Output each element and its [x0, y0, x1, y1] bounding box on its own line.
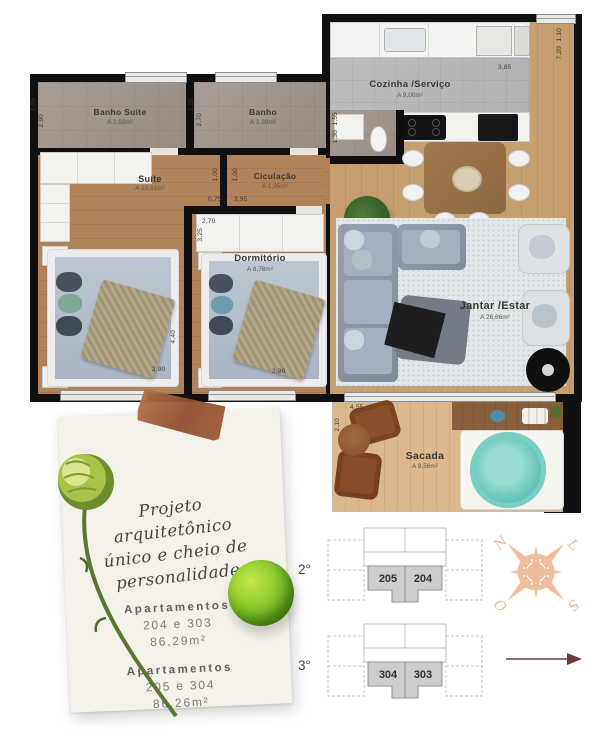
oven-tower — [514, 26, 530, 56]
dim: 2,90 — [152, 366, 165, 373]
room-label-jantar: Jantar /Estar A 26,66m² — [425, 300, 565, 321]
dining-chair — [508, 184, 530, 201]
sacada-chair-bottom — [333, 449, 382, 500]
dorm-bed — [202, 254, 326, 386]
dorm-top-wall — [192, 206, 296, 214]
compass-rose: N L S O — [486, 520, 586, 624]
table-centerpiece — [452, 166, 482, 192]
dim: 4,40 — [170, 330, 177, 343]
floor-label: 2° — [298, 562, 311, 577]
room-name: Cozinha /Serviço — [345, 80, 475, 91]
unit-number: 304 — [379, 669, 398, 681]
floor-diagram-2: 2° 205 204 — [298, 524, 488, 616]
sacada-table — [338, 424, 370, 456]
dim: 3,85 — [498, 64, 511, 71]
direction-arrow — [504, 648, 584, 670]
dim: 1,00 — [232, 168, 239, 181]
dining-chair — [402, 184, 424, 201]
dim: 3,95 — [234, 196, 247, 203]
building-outline-3: 304 303 — [322, 620, 488, 712]
room-label-sacada: Sacada A 9,56m² — [385, 450, 465, 471]
wc-bottom-wall — [330, 156, 404, 164]
dim: 2,90 — [272, 368, 285, 375]
room-area: A 1,95m² — [225, 183, 325, 190]
compass-letter-s: S — [564, 596, 582, 614]
room-area: A 8,78m² — [195, 266, 325, 273]
suite-pillow-dark2 — [56, 316, 82, 336]
dim: 2,90 — [38, 114, 45, 127]
dim: 1,25 — [188, 98, 195, 111]
dim: 7,20 — [556, 46, 563, 59]
dining-chair — [402, 150, 424, 167]
armchair-top — [518, 224, 570, 274]
room-area: A 26,66m² — [425, 314, 565, 321]
compass-center — [527, 563, 545, 581]
suite-dorm-divider — [184, 206, 192, 394]
dim: 4,55 — [350, 404, 363, 411]
dim: 2,70 — [196, 113, 203, 126]
burner — [408, 119, 416, 127]
unit-number: 205 — [379, 573, 397, 585]
dorm-pillow-dark1 — [209, 274, 233, 293]
cooktop — [402, 115, 446, 140]
sofa-cushion — [344, 280, 392, 324]
flower-illustration — [10, 438, 210, 738]
room-name: Sacada — [385, 450, 465, 462]
arrow-head — [567, 653, 582, 665]
bar-plant — [550, 406, 562, 418]
dim: 2,70 — [202, 218, 215, 225]
room-name: Ciculação — [225, 172, 325, 182]
sacada-right-wall — [563, 398, 581, 504]
burner — [432, 128, 440, 136]
floor-label: 3° — [298, 658, 311, 673]
banho-door — [290, 148, 318, 155]
flower-leaf — [80, 558, 87, 572]
room-label-circulacao: Ciculação A 1,95m² — [225, 172, 325, 190]
fridge — [476, 26, 512, 56]
dim: 1,30 — [332, 130, 339, 143]
dorm-door — [296, 206, 322, 214]
dim: 1,10 — [556, 28, 563, 41]
compass-letter-o: O — [491, 595, 511, 615]
banho-window — [215, 72, 277, 83]
building-outline-2: 205 204 — [322, 524, 488, 616]
dining-chair — [508, 150, 530, 167]
armchair-pillow — [529, 235, 555, 259]
burner — [432, 119, 440, 127]
room-label-banho-suite: Banho Suite A 3,63m² — [70, 108, 170, 126]
wc-toilet — [370, 126, 387, 152]
burner — [408, 128, 416, 136]
room-label-banho: Banho A 3,38m² — [228, 108, 298, 126]
compass-ray-l — [540, 540, 568, 568]
suite-pillow-teal — [58, 294, 82, 313]
dorm-pillow-dark2 — [209, 316, 233, 335]
dim: 1,25 — [30, 98, 37, 111]
hot-tub — [470, 432, 546, 508]
dim: 1,00 — [212, 168, 219, 181]
banho-suite-window — [125, 72, 187, 83]
kitchen-sink — [384, 28, 426, 52]
flower-stem — [84, 486, 176, 716]
side-table-decor — [542, 364, 554, 376]
dorm-window — [208, 390, 296, 401]
dim: 0,75 — [208, 196, 221, 203]
compass-ray-s — [540, 576, 568, 604]
room-name: Jantar /Estar — [425, 300, 565, 313]
room-label-dormitorio: Dormitório A 8,78m² — [195, 254, 325, 273]
room-area: A 3,63m² — [70, 119, 170, 126]
dorm-pillow-teal — [211, 296, 233, 314]
room-name: Suíte — [100, 174, 200, 184]
dim: 1,55 — [332, 112, 339, 125]
room-area: A 9,56m² — [385, 463, 465, 470]
room-label-suite: Suíte A 13,51m² — [100, 174, 200, 193]
room-name: Banho Suite — [70, 108, 170, 118]
room-area: A 13,51m² — [100, 185, 200, 192]
room-area: A 9,00m² — [345, 92, 475, 99]
suite-pillow-dark1 — [56, 272, 82, 292]
bar-towels — [522, 408, 548, 424]
round-side-table — [526, 348, 570, 392]
suite-wardrobe — [40, 184, 70, 242]
suite-window — [60, 390, 148, 401]
dim: 3,25 — [197, 228, 204, 241]
pompom-flower — [228, 560, 294, 626]
floor-diagram-3: 3° 304 303 — [298, 620, 488, 712]
room-label-cozinha: Cozinha /Serviço A 9,00m² — [345, 80, 475, 99]
dim: 2,10 — [334, 418, 341, 431]
compass-ray-o — [504, 576, 532, 604]
room-name: Dormitório — [195, 254, 325, 265]
unit-number: 204 — [414, 573, 433, 585]
coffee-station — [478, 114, 518, 141]
bar-bowl — [490, 410, 505, 422]
compass-letter-l: L — [563, 536, 582, 555]
unit-number: 303 — [414, 669, 432, 681]
flower-leaf — [96, 618, 106, 632]
kitchen-window — [536, 14, 576, 24]
suite-door — [150, 148, 178, 155]
compass-letter-n: N — [490, 533, 511, 554]
brochure-page: Banho Suite A 3,63m² Banho A 3,38m² Suít… — [0, 0, 600, 750]
sacada-bar — [452, 402, 563, 430]
room-area: A 3,38m² — [228, 119, 298, 126]
dining-table — [424, 142, 506, 214]
sacada-sliding-door — [344, 392, 556, 402]
room-name: Banho — [228, 108, 298, 118]
